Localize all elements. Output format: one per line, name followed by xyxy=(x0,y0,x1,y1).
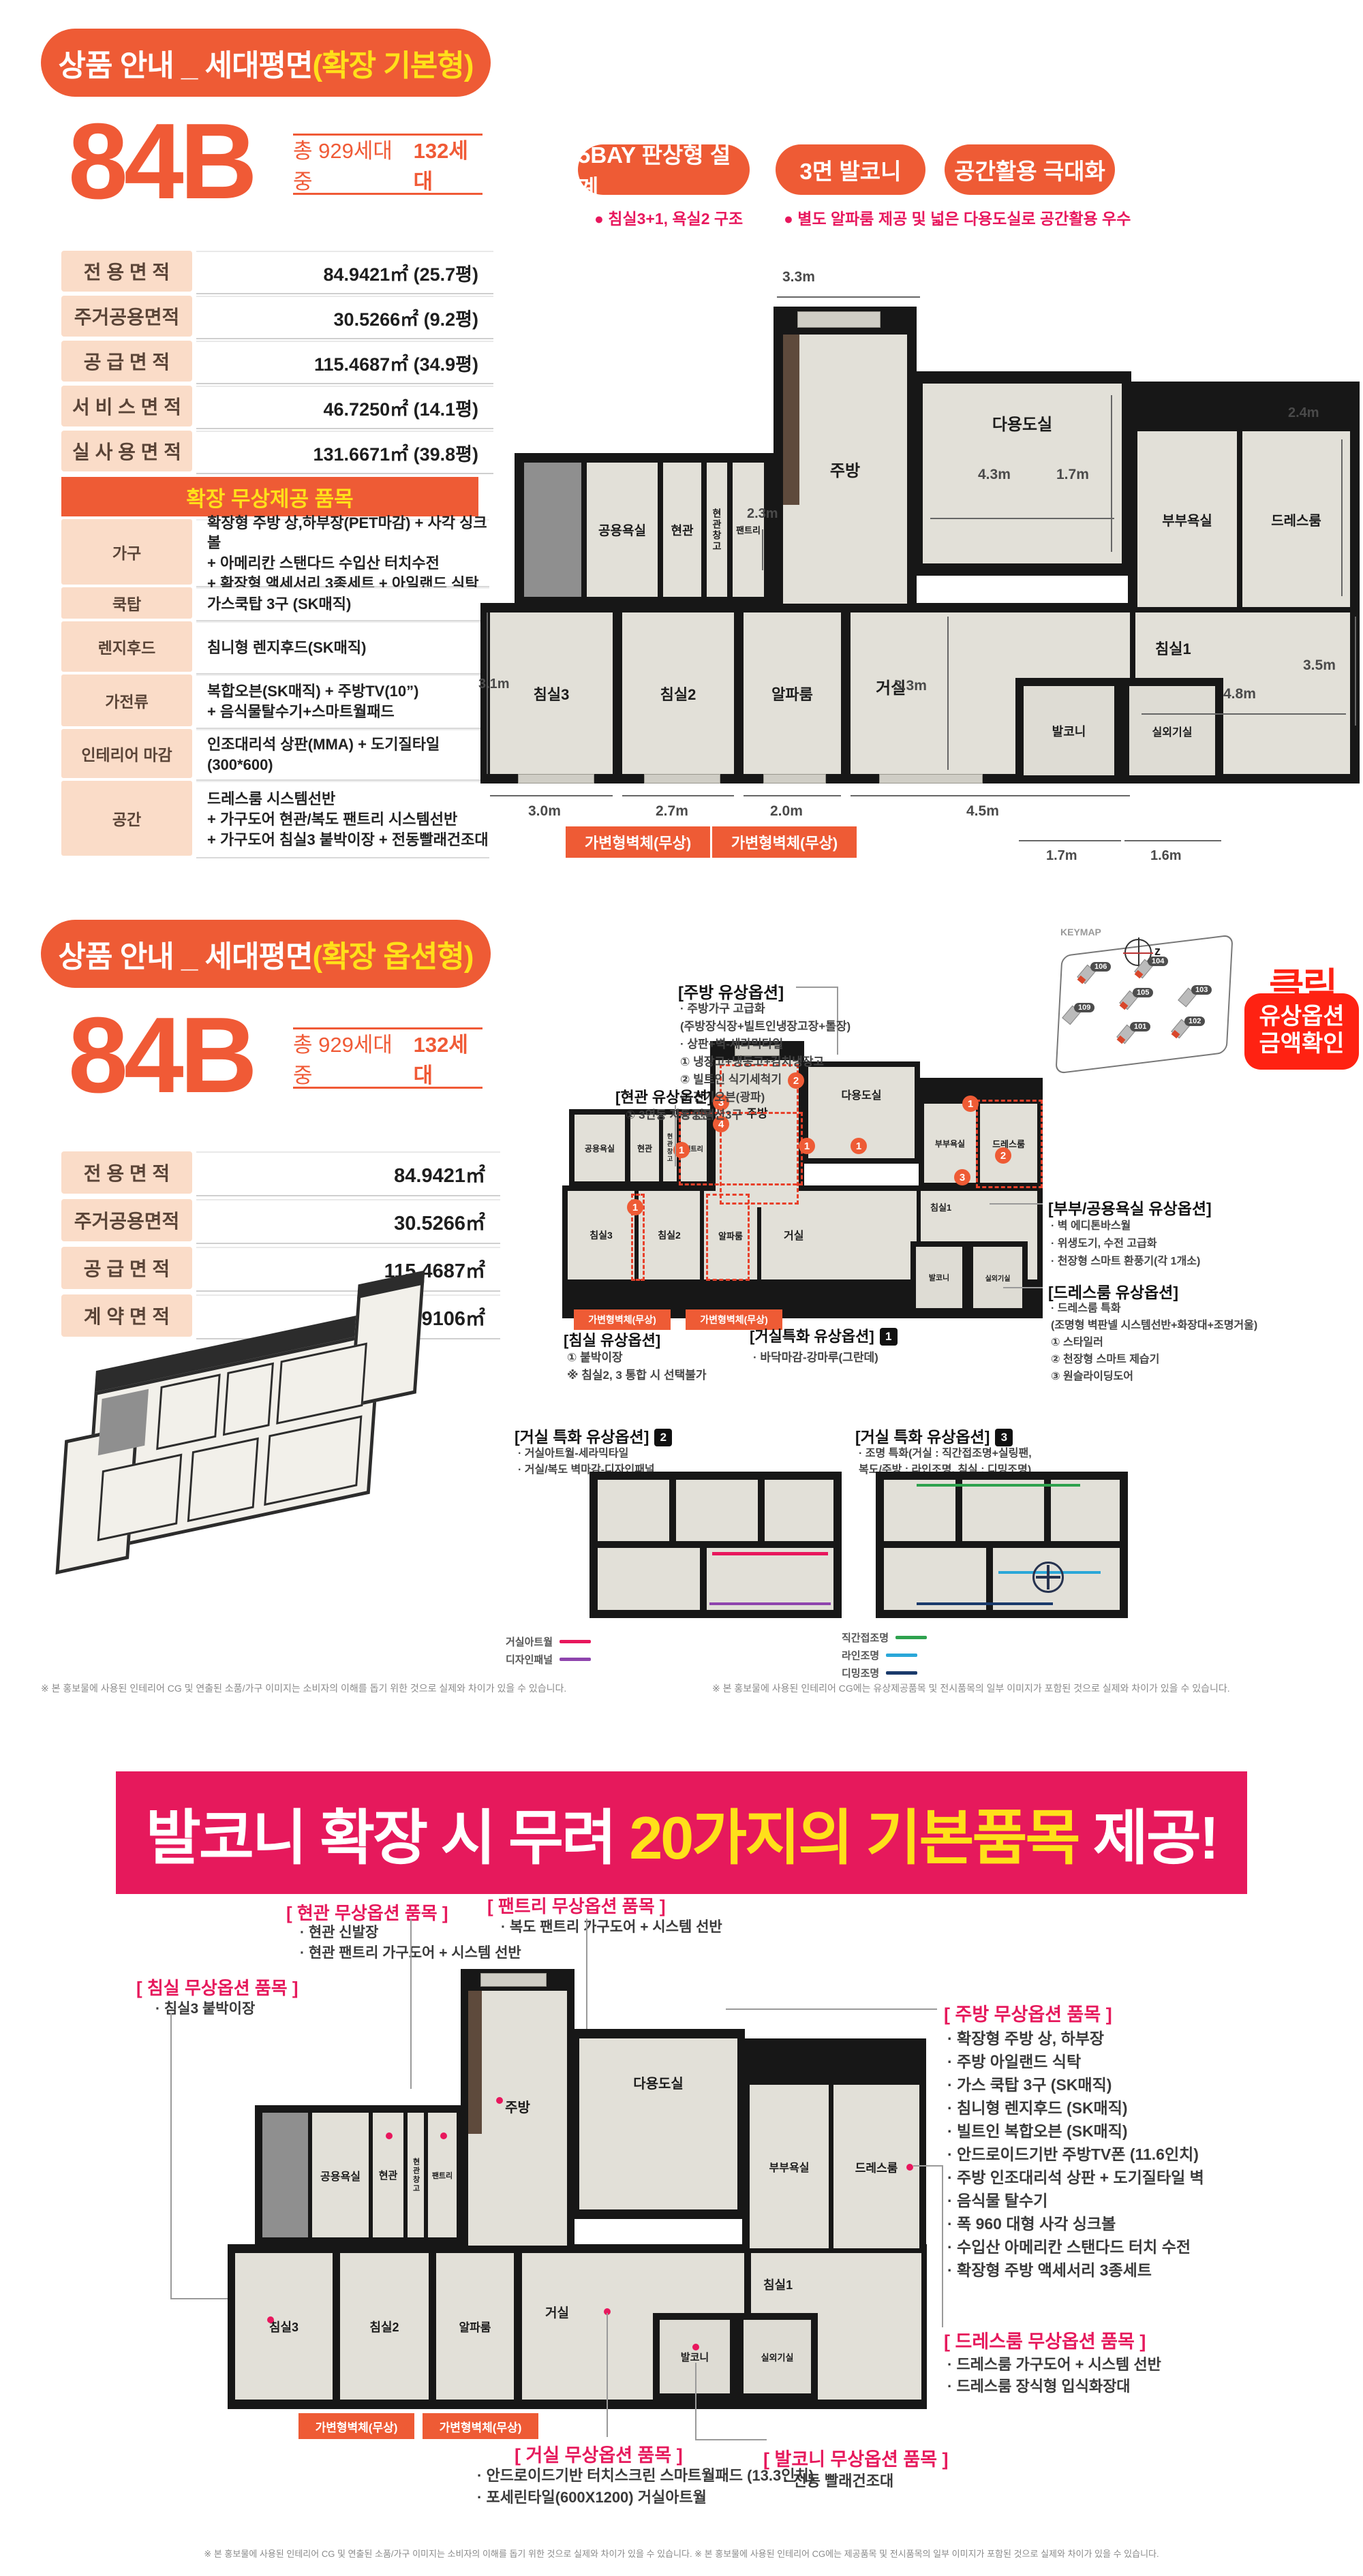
room-entry: 현관 xyxy=(663,463,701,597)
legend-swatch-indirect xyxy=(895,1636,927,1639)
click-line1: 유상옵션 xyxy=(1244,1003,1359,1030)
legend-living2: 거실아트월 디자인패널 xyxy=(506,1632,591,1668)
room-bed3: 침실3 xyxy=(235,2253,333,2400)
section2-title-pill: 상품 안내 _ 세대평면(확장 옵션형) xyxy=(41,920,491,988)
dim: 3.3m xyxy=(782,269,815,285)
callout-title-text: [거실특화 유상옵션] xyxy=(750,1328,874,1345)
room-utility: 다용도실 xyxy=(579,2038,737,2209)
dim: 1.7m xyxy=(1046,848,1077,864)
dim-arrow xyxy=(1124,840,1221,841)
callout-line xyxy=(913,2165,943,2167)
room-balcony: 발코니 xyxy=(1015,678,1122,783)
keymap-building-chip: 102 xyxy=(1184,1017,1205,1026)
callout-kitchen-title: [주방 유상옵션] xyxy=(678,979,784,1003)
room-label: 현관창고 xyxy=(410,2158,421,2193)
legend-swatch-dimming xyxy=(886,1671,917,1675)
callout-entry-items: ① 3연동 자동중문 xyxy=(626,1106,712,1124)
households-count: 132세대 xyxy=(414,1027,483,1089)
window xyxy=(797,311,880,328)
callout-item: (주방장식장+빌트인냉장고장+톨장) xyxy=(680,1018,851,1036)
legend-label: 거실아트월 xyxy=(506,1634,553,1649)
callout-item: ① 붙박이장 xyxy=(567,1349,707,1367)
legend-living3: 직간접조명 라인조명 디밍조명 xyxy=(842,1628,927,1681)
legend-swatch-line xyxy=(886,1654,917,1657)
free-label: 쿡탑 xyxy=(61,587,192,619)
area-value: 46.7250㎡ (14.1평) xyxy=(196,386,493,429)
callout-title-text: [거실 특화 유상옵션] xyxy=(515,1428,649,1446)
window xyxy=(480,1973,547,1987)
badge-space: 공간활용 극대화 xyxy=(945,144,1115,195)
room-entry: 현관 xyxy=(630,1115,659,1181)
marker-dot xyxy=(906,2164,913,2171)
dim: 4.8m xyxy=(1223,686,1256,702)
callout-item: · 전동 빨래건조대 xyxy=(784,2469,893,2491)
free-value: 인조대리석 상판(MMA) + 도기질타일(300*600) xyxy=(196,729,489,781)
callout-dress-title: [드레스룸 유상옵션] xyxy=(1048,1279,1178,1303)
callout-line xyxy=(1003,1287,1043,1288)
window xyxy=(644,774,720,783)
area-label: 주거공용면적 xyxy=(61,296,192,337)
callout-item: · 벽 에디톤바스월 xyxy=(1051,1217,1200,1235)
banner-post: 제공! xyxy=(1078,1790,1217,1876)
free-label: 인테리어 마감 xyxy=(61,729,192,778)
dim-arrow xyxy=(851,795,1130,796)
plan-cell xyxy=(598,1548,700,1610)
legend-swatch-designpanel xyxy=(560,1658,591,1661)
indirect-light-line xyxy=(917,1484,1080,1487)
area-label: 공 급 면 적 xyxy=(61,1247,192,1289)
free-callout-kitchen-title: [ 주방 무상옵션 품목 ] xyxy=(944,2000,1112,2026)
free-label: 공간 xyxy=(61,781,192,856)
free-value: 확장형 주방 상,하부장(PET마감) + 사각 싱크볼 + 아메리칸 스탠다드… xyxy=(196,519,489,587)
keymap-building-chip: 101 xyxy=(1130,1022,1150,1031)
window xyxy=(763,774,826,783)
households-1: 총 929세대 중 132세대 xyxy=(293,134,483,195)
free-label: 가전류 xyxy=(61,674,192,726)
callout-item: · 빌트인 복합오븐 (SK매직) xyxy=(947,2120,1204,2143)
callout-title-text: [거실 특화 유상옵션] xyxy=(855,1428,990,1446)
callout-line xyxy=(695,2363,696,2439)
room-bed2: 침실2 xyxy=(639,1191,700,1279)
callout-bed-items: ① 붙박이장 ※ 침실2, 3 통합 시 선택불가 xyxy=(567,1349,707,1384)
free-callout-balcony-title: [ 발코니 무상옵션 품목 ] xyxy=(763,2445,949,2471)
callout-living1-title: [거실특화 유상옵션]1 xyxy=(750,1324,898,1346)
ceiling-fan-icon xyxy=(1032,1562,1064,1593)
section1-title-pill: 상품 안내 _ 세대평면(확장 기본형) xyxy=(41,29,491,97)
room-utility: 다용도실 xyxy=(923,384,1122,563)
callout-item: ② 천장형 스마트 제습기 xyxy=(1051,1351,1257,1368)
room-bath-master: 부부욕실 xyxy=(750,2085,829,2248)
keymap-building-chip: 105 xyxy=(1133,988,1153,997)
keymap-building-chip: 104 xyxy=(1148,957,1168,966)
room-bed2: 침실2 xyxy=(622,612,734,774)
click-line2: 금액확인 xyxy=(1244,1030,1359,1057)
dim: 3.5m xyxy=(1303,657,1336,674)
keymap: KEYMAP z 106 104 105 103 109 101 102 xyxy=(1058,927,1242,1073)
marker-dot xyxy=(267,2316,274,2323)
room-bed3: 침실3 xyxy=(568,1191,634,1279)
households-prefix: 총 929세대 중 xyxy=(293,134,410,195)
room-bed1-label: 침실1 xyxy=(763,2276,793,2293)
callout-line xyxy=(942,2165,943,2327)
free-callout-living-title: [ 거실 무상옵션 품목 ] xyxy=(515,2440,683,2467)
section2-title: 상품 안내 _ 세대평면 xyxy=(59,932,313,976)
section1-title: 상품 안내 _ 세대평면 xyxy=(59,41,313,84)
callout-item: · 안드로이드기반 주방TV폰 (11.6인치) xyxy=(947,2143,1204,2166)
callout-item: · 드레스룸 특화 xyxy=(1051,1300,1257,1317)
window xyxy=(518,774,594,783)
room-pantry: 팬트리 xyxy=(428,2113,457,2237)
callout-number-box: 3 xyxy=(995,1429,1013,1446)
dim: 1.6m xyxy=(1150,848,1182,864)
marker-1: 1 xyxy=(851,1138,867,1154)
unit-code-2: 84B xyxy=(68,1002,254,1109)
callout-living1-items: · 바닥마감-강마루(그란데) xyxy=(753,1348,878,1365)
legend-label: 디자인패널 xyxy=(506,1652,553,1666)
area-value: 84.9421㎡ xyxy=(196,1151,500,1196)
area-value: 115.4687㎡ (34.9평) xyxy=(196,341,493,384)
dim-arrow xyxy=(1341,439,1343,596)
room-alpha: 알파룸 xyxy=(436,2253,514,2400)
room-bath-master: 부부욕실 xyxy=(1137,431,1237,607)
room-kitchen: 주방 xyxy=(783,335,907,604)
badge-note-2: ● 별도 알파룸 제공 및 넓은 다용도실로 공간활용 우수 xyxy=(784,206,1131,229)
room-balcony: 발코니 xyxy=(910,1241,968,1314)
callout-item: ① 3연동 자동중문 xyxy=(626,1106,712,1124)
callout-item: · 상판+벽-세라믹타일 xyxy=(680,1036,851,1053)
wall-tag: 가변형벽체(무상) xyxy=(712,826,857,858)
unit-code-1: 84B xyxy=(68,108,254,215)
marker-dot xyxy=(386,2132,393,2139)
callout-item: · 확장형 주방 액세서리 3종세트 xyxy=(947,2259,1204,2282)
free-callout-dress-title: [ 드레스룸 무상옵션 품목 ] xyxy=(944,2327,1146,2353)
plan-cell xyxy=(1051,1480,1120,1541)
callout-item: · 음식물 탈수기 xyxy=(947,2189,1204,2212)
free-callout-entry-title: [ 현관 무상옵션 품목 ] xyxy=(286,1899,448,1925)
marker-1: 1 xyxy=(962,1096,979,1112)
room-bath-master: 부부욕실 xyxy=(924,1104,976,1183)
callout-bath-items: · 벽 에디톤바스월 · 위생도기, 수전 고급화 · 천장형 스마트 환풍기(… xyxy=(1051,1217,1200,1271)
callout-item: ※ 침실2, 3 통합 시 선택불가 xyxy=(567,1367,707,1384)
dim-arrow xyxy=(1355,617,1356,726)
legend-label: 라인조명 xyxy=(842,1648,879,1662)
room-living-label: 거실 xyxy=(784,1226,803,1243)
artwall-line xyxy=(712,1552,828,1555)
room-bath-common: 공용욕실 xyxy=(575,1115,625,1181)
promo-banner: 발코니 확장 시 무려 20가지의 기본품목 제공! xyxy=(116,1771,1247,1894)
room-bed1-label: 침실1 xyxy=(930,1200,951,1213)
dim: 4.5m xyxy=(966,803,999,820)
dim: 3.0m xyxy=(528,803,561,820)
marker-1: 1 xyxy=(799,1138,815,1154)
free-callout-pantry-title: [ 팬트리 무상옵션 품목 ] xyxy=(487,1893,666,1918)
axon-shaft xyxy=(98,1389,149,1456)
living-option3-plan xyxy=(876,1472,1128,1618)
callout-item: · 폭 960 대형 사각 싱크볼 xyxy=(947,2212,1204,2235)
plan-cell xyxy=(765,1480,833,1541)
dim-arrow xyxy=(622,795,734,796)
free-value: 복합오븐(SK매직) + 주방TV(10”) + 음식물탈수기+스마트월패드 xyxy=(196,674,489,729)
callout-number-box: 1 xyxy=(880,1328,898,1346)
free-value: 침니형 렌지후드(SK매직) xyxy=(196,621,489,674)
callout-bed-title: [침실 유상옵션] xyxy=(564,1329,660,1350)
dim: 2.4m xyxy=(1288,405,1319,421)
marker-3: 3 xyxy=(954,1169,970,1185)
area-label: 전 용 면 적 xyxy=(61,1151,192,1194)
free-callout-kitchen-items: · 확장형 주방 상, 하부장 · 주방 아일랜드 식탁 · 가스 쿡탑 3구 … xyxy=(947,2027,1204,2282)
disclaimer-left: ※ 본 홍보물에 사용된 인테리어 CG 및 연출된 소품/가구 이미지는 소비… xyxy=(41,1681,566,1695)
callout-line xyxy=(796,987,837,988)
dim-arrow xyxy=(1111,395,1112,552)
area-value: 30.5266㎡ xyxy=(196,1199,500,1244)
dimming-light-line xyxy=(917,1602,1053,1605)
room-kitchen: 주방 xyxy=(468,1991,567,2246)
legend-label: 직간접조명 xyxy=(842,1630,889,1645)
dim-arrow xyxy=(490,795,613,796)
keymap-label: KEYMAP xyxy=(1060,927,1101,937)
free-label: 렌지후드 xyxy=(61,621,192,672)
keymap-building-chip: 109 xyxy=(1074,1003,1094,1012)
room-label: 현관창고 xyxy=(710,508,724,552)
floorplan-free-options: 주방 다용도실 공용욕실 현관 현관창고 팬트리 부부욕실 드레스룸 침실3 침… xyxy=(225,1962,930,2439)
callout-item: ③ 원슬라이딩도어 xyxy=(1051,1368,1257,1385)
callout-item: ① 스타일러 xyxy=(1051,1334,1257,1351)
room-shaft xyxy=(262,2113,308,2237)
callout-item: · 위생도기, 수전 고급화 xyxy=(1051,1235,1200,1253)
callout-bath-title: [부부/공용욕실 유상옵션] xyxy=(1048,1196,1212,1219)
room-bath-common: 공용욕실 xyxy=(312,2113,369,2237)
plan-cell xyxy=(884,1548,986,1610)
keymap-building-chip: 106 xyxy=(1090,962,1111,972)
room-pantry: 팬트리 xyxy=(733,463,764,597)
axon-room xyxy=(223,1363,274,1436)
area-label: 전 용 면 적 xyxy=(61,251,192,292)
wall-tag: 가변형벽체(무상) xyxy=(566,826,710,858)
callout-living2-title: [거실 특화 유상옵션]2 xyxy=(515,1424,672,1447)
window xyxy=(879,774,983,783)
area-label: 서 비 스 면 적 xyxy=(61,386,192,426)
room-bed3: 침실3 xyxy=(490,612,613,774)
callout-item: · 주방 인조대리석 상판 + 도기질타일 벽 xyxy=(947,2166,1204,2189)
bottom-disclaimer: ※ 본 홍보물에 사용된 인테리어 CG 및 연출된 소품/가구 이미지는 소비… xyxy=(0,2547,1363,2560)
area-value: 84.9421㎡ (25.7평) xyxy=(196,251,493,294)
room-ac: 실외기실 xyxy=(737,2313,818,2400)
callout-item: · 침니형 렌지후드 (SK매직) xyxy=(947,2096,1204,2120)
callout-item: · 거실아트월-세라믹타일 xyxy=(518,1446,655,1462)
free-label: 가구 xyxy=(61,519,192,585)
keymap-building-chip: 103 xyxy=(1191,985,1212,995)
section1-title-sub: (확장 기본형) xyxy=(313,41,474,84)
callout-item: ① 냉장고+냉동고+김치냉장고 xyxy=(680,1053,851,1071)
households-prefix: 총 929세대 중 xyxy=(293,1027,410,1089)
callout-item: · 포세린타일(600X1200) 거실아트월 xyxy=(477,2487,814,2509)
callout-item: · 바닥마감-강마루(그란데) xyxy=(753,1348,878,1365)
badge-note-1: ● 침실3+1, 욕실2 구조 xyxy=(594,206,743,229)
room-shaft xyxy=(524,463,581,597)
callout-item: (조명형 벽판넬 시스템선반+화장대+조명거울) xyxy=(1051,1317,1257,1334)
plan-cell xyxy=(676,1480,758,1541)
room-bed2: 침실2 xyxy=(340,2253,429,2400)
callout-item: · 드레스룸 장식형 입식화장대 xyxy=(947,2376,1161,2397)
dim: 1.7m xyxy=(1056,467,1089,483)
banner-pre: 발코니 확장 시 무려 xyxy=(146,1790,629,1876)
disclaimer-right: ※ 본 홍보물에 사용된 인테리어 CG에는 유상제공품목 및 전시품목의 일부… xyxy=(712,1681,1230,1695)
free-value: 가스쿡탑 3구 (SK매직) xyxy=(196,587,489,621)
plan-cell xyxy=(598,1480,669,1541)
callout-line xyxy=(607,2313,608,2437)
kitchen-counter xyxy=(783,335,799,505)
room-bath-common: 공용욕실 xyxy=(587,463,658,597)
dim-arrow xyxy=(930,518,1114,519)
room-bed1-label: 침실1 xyxy=(1155,637,1191,659)
callout-item: · 드레스룸 가구도어 + 시스템 선반 xyxy=(947,2354,1161,2376)
dim-arrow xyxy=(947,617,949,770)
marker-dot xyxy=(692,2344,699,2350)
callout-entry-title: [현관 유상옵션] xyxy=(615,1085,712,1107)
dim-arrow xyxy=(744,795,841,796)
kitchen-counter xyxy=(468,1991,482,2134)
free-items-title: 확장 무상제공 품목 xyxy=(61,477,478,516)
free-callout-pantry-items: · 복도 팬트리 가구도어 + 시스템 선반 xyxy=(501,1916,722,1936)
room-dress: 드레스룸 xyxy=(1242,431,1350,607)
area-value: 30.5266㎡ (9.2평) xyxy=(196,296,493,339)
dim-arrow xyxy=(1019,840,1121,841)
callout-item: · 가스 쿡탑 3구 (SK매직) xyxy=(947,2073,1204,2096)
click-box[interactable]: 유상옵션 금액확인 xyxy=(1244,993,1359,1070)
room-ac: 실외기실 xyxy=(968,1241,1028,1314)
free-callout-dress-items: · 드레스룸 가구도어 + 시스템 선반 · 드레스룸 장식형 입식화장대 xyxy=(947,2354,1161,2397)
dim: 3.1m xyxy=(478,677,510,692)
marker-1: 1 xyxy=(627,1199,643,1215)
brochure-page: 상품 안내 _ 세대평면(확장 기본형) 84B 총 929세대 중 132세대… xyxy=(0,0,1363,2576)
free-callout-balcony-items: · 전동 빨래건조대 xyxy=(784,2469,893,2491)
badge-balcony: 3면 발코니 xyxy=(776,144,925,195)
callout-line xyxy=(695,2439,767,2440)
room-entry: 현관 xyxy=(373,2113,403,2237)
area-label: 공 급 면 적 xyxy=(61,341,192,382)
area-label: 주거공용면적 xyxy=(61,1199,192,1241)
room-ac: 실외기실 xyxy=(1121,678,1223,783)
households-2: 총 929세대 중 132세대 xyxy=(293,1027,483,1089)
callout-line xyxy=(170,2013,172,2299)
plan-cell xyxy=(962,1480,1044,1541)
room-alpha: 알파룸 xyxy=(744,612,841,774)
room-entry-closet: 현관창고 xyxy=(707,463,727,597)
wall-tag: 가변형벽체(무상) xyxy=(574,1309,671,1330)
dim: 3.3m xyxy=(894,678,927,694)
callout-living3-title: [거실 특화 유상옵션]3 xyxy=(855,1424,1013,1447)
free-value: 드레스룸 시스템선반 + 가구도어 현관/복도 팬트리 시스템선반 + 가구도어… xyxy=(196,781,489,858)
callout-item: · 확장형 주방 상, 하부장 xyxy=(947,2027,1204,2050)
callout-item: · 조명 특화(거실 : 직간접조명+실링팬, xyxy=(859,1446,1032,1462)
banner-highlight: 20가지의 기본품목 xyxy=(629,1790,1078,1876)
room-living-label: 거실 xyxy=(545,2303,569,2321)
dim-arrow xyxy=(487,612,488,774)
wall-tag: 가변형벽체(무상) xyxy=(298,2413,414,2439)
dim-arrow xyxy=(777,296,920,298)
legend-label: 디밍조명 xyxy=(842,1666,879,1680)
dim: 2.3m xyxy=(747,506,778,522)
legend-swatch-artwall xyxy=(560,1640,591,1643)
callout-item: · 수입산 아메리칸 스탠다드 터치 수전 xyxy=(947,2235,1204,2259)
marker-dot xyxy=(496,2097,503,2104)
free-callout-living-items: · 안드로이드기반 터치스크린 스마트월패드 (13.3인치) · 포세린타일(… xyxy=(477,2465,814,2509)
room-entry-closet: 현관창고 xyxy=(408,2113,424,2237)
wall-tag: 가변형벽체(무상) xyxy=(423,2413,538,2439)
dim: 2.0m xyxy=(770,803,803,820)
callout-dress-items: · 드레스룸 특화 (조명형 벽판넬 시스템선반+화장대+조명거울) ① 스타일… xyxy=(1051,1300,1257,1385)
badge-5bay: 5BAY 판상형 설계 xyxy=(578,144,750,195)
section2-title-sub: (확장 옵션형) xyxy=(313,932,474,976)
option-zone xyxy=(706,1194,750,1281)
living-option2-plan xyxy=(589,1472,842,1618)
floorplan-basic: 3.3m 공용욕실 현관 현관창고 팬트리 주방 다용도실 4.3m 1.7m … xyxy=(477,269,1363,869)
callout-number-box: 2 xyxy=(654,1429,672,1446)
dim: 4.3m xyxy=(978,467,1011,483)
dim: 2.7m xyxy=(656,803,688,820)
area-label: 실 사 용 면 적 xyxy=(61,431,192,471)
callout-item: · 주방가구 고급화 xyxy=(680,1000,851,1018)
area-value: 131.6671㎡ (39.8평) xyxy=(196,431,493,474)
households-count: 132세대 xyxy=(414,134,483,195)
callout-item: · 복도 팬트리 가구도어 + 시스템 선반 xyxy=(501,1916,722,1936)
option-zone xyxy=(976,1100,1043,1188)
callout-line xyxy=(990,1203,1043,1205)
marker-2: 2 xyxy=(995,1147,1011,1164)
marker-dot xyxy=(440,2132,447,2139)
dim-arrow xyxy=(1142,713,1346,715)
designpanel-line xyxy=(709,1602,831,1605)
plan-cell xyxy=(884,1480,955,1541)
callout-item: · 주방 아일랜드 식탁 xyxy=(947,2050,1204,2073)
plan-cell xyxy=(707,1548,833,1610)
callout-item: · 천장형 스마트 환풍기(각 1개소) xyxy=(1051,1253,1200,1271)
dim-arrow xyxy=(762,529,763,570)
